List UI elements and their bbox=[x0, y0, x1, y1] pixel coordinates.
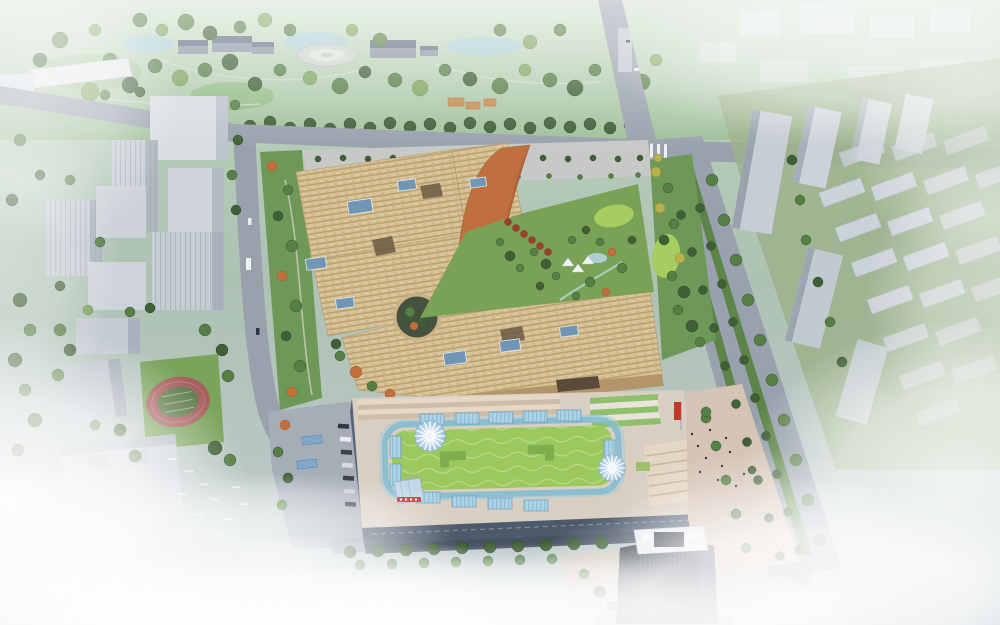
northeast-green-terraces bbox=[590, 394, 661, 428]
glass-dome-west bbox=[415, 421, 445, 451]
red-banner-flag bbox=[674, 402, 681, 420]
aerial-rendering-canvas bbox=[0, 0, 1000, 625]
rendered-scene bbox=[0, 0, 1000, 625]
glass-dome-east bbox=[599, 455, 625, 481]
